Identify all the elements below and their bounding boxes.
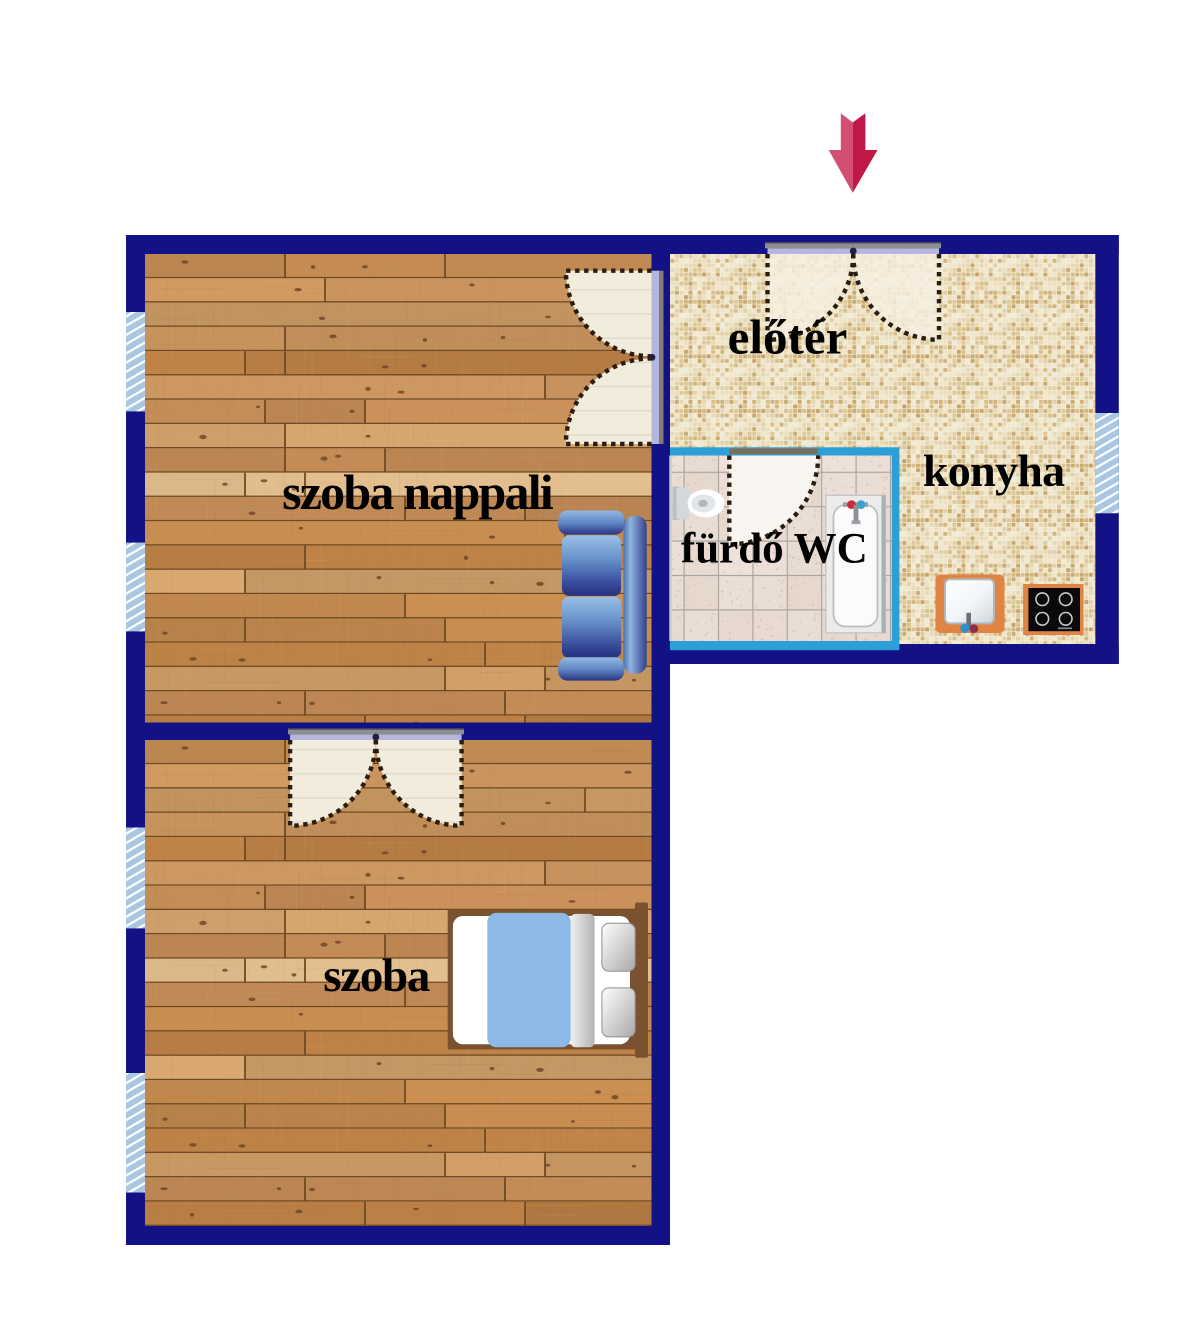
svg-text:előtér: előtér — [728, 310, 848, 365]
svg-text:konyha: konyha — [923, 445, 1065, 496]
svg-text:szoba: szoba — [323, 950, 430, 1002]
svg-text:szoba nappali: szoba nappali — [282, 464, 554, 520]
svg-text:fürdő WC: fürdő WC — [681, 525, 868, 572]
